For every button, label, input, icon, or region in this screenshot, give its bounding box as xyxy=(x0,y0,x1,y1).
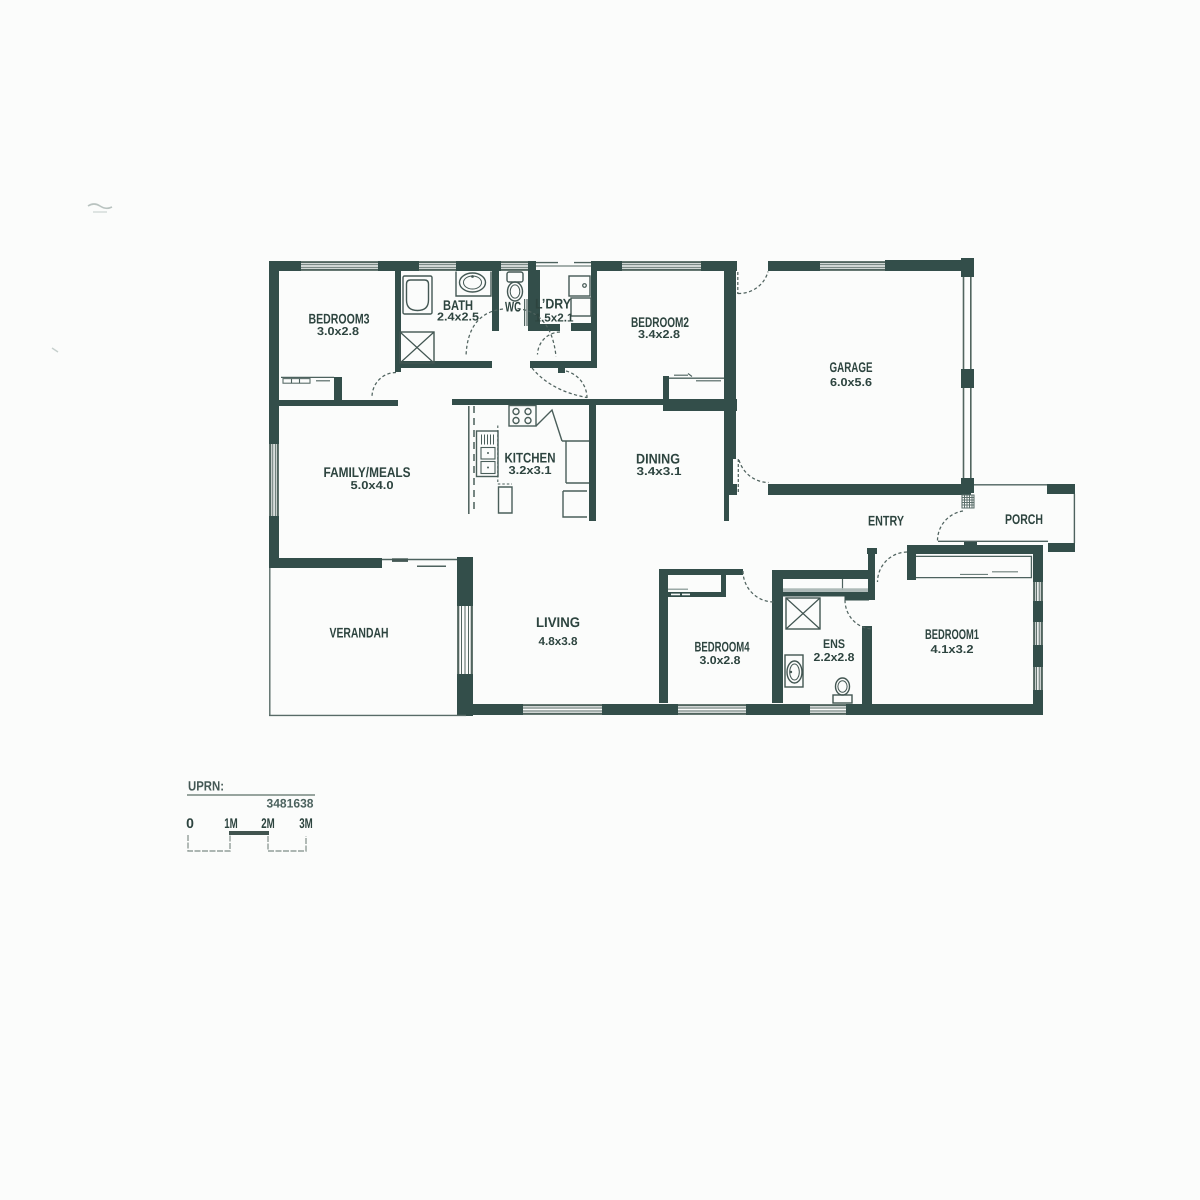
svg-text:FAMILY/MEALS: FAMILY/MEALS xyxy=(324,464,411,480)
svg-text:L’DRY: L’DRY xyxy=(535,296,572,312)
svg-text:2.4x2.5: 2.4x2.5 xyxy=(437,312,480,324)
svg-text:ENTRY: ENTRY xyxy=(868,513,905,529)
svg-text:BEDROOM2: BEDROOM2 xyxy=(631,314,689,330)
svg-text:3.0x2.8: 3.0x2.8 xyxy=(317,326,359,338)
svg-text:BEDROOM4: BEDROOM4 xyxy=(695,639,750,655)
svg-text:3.4x3.1: 3.4x3.1 xyxy=(637,466,683,478)
svg-text:UPRN:: UPRN: xyxy=(188,779,224,794)
svg-text:6.0x5.6: 6.0x5.6 xyxy=(830,377,872,389)
svg-text:GARAGE: GARAGE xyxy=(830,359,873,375)
svg-text:BEDROOM1: BEDROOM1 xyxy=(925,626,979,642)
svg-text:VERANDAH: VERANDAH xyxy=(330,625,389,641)
svg-text:3481638: 3481638 xyxy=(267,797,314,811)
svg-text:DINING: DINING xyxy=(636,451,680,467)
svg-text:1.5x2.1: 1.5x2.1 xyxy=(535,313,575,325)
svg-text:BEDROOM3: BEDROOM3 xyxy=(309,311,370,327)
svg-text:4.1x3.2: 4.1x3.2 xyxy=(931,644,974,656)
svg-text:1M: 1M xyxy=(224,815,238,831)
svg-text:2M: 2M xyxy=(261,815,275,831)
svg-text:2.2x2.8: 2.2x2.8 xyxy=(814,652,855,664)
svg-text:ENS: ENS xyxy=(823,637,845,651)
svg-text:3.0x2.8: 3.0x2.8 xyxy=(700,655,741,667)
svg-text:3.2x3.1: 3.2x3.1 xyxy=(509,465,553,477)
svg-text:KITCHEN: KITCHEN xyxy=(505,450,556,466)
svg-text:4.8x3.8: 4.8x3.8 xyxy=(539,636,578,648)
svg-text:WC: WC xyxy=(505,299,521,315)
svg-text:3.4x2.8: 3.4x2.8 xyxy=(638,329,680,341)
svg-text:3M: 3M xyxy=(299,815,313,831)
svg-text:LIVING: LIVING xyxy=(536,614,580,630)
svg-text:5.0x4.0: 5.0x4.0 xyxy=(351,480,394,492)
svg-text:0: 0 xyxy=(186,815,194,831)
svg-text:PORCH: PORCH xyxy=(1005,511,1043,527)
